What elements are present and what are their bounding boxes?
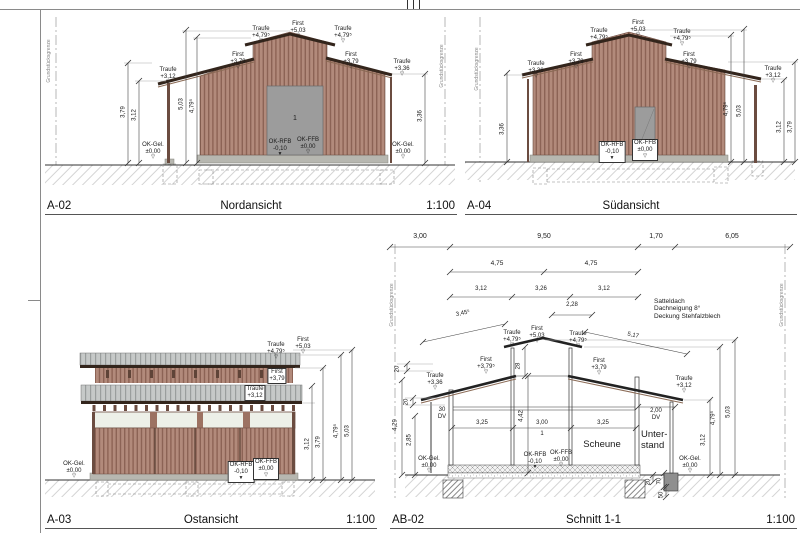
nordansicht-drawing <box>40 9 460 219</box>
suedansicht-drawing <box>460 9 800 219</box>
fold-mark-top <box>407 0 408 9</box>
drawing-title: Schnitt 1-1 <box>566 514 621 526</box>
ground-hatch <box>45 165 455 185</box>
drawing-title: Südansicht <box>603 200 660 212</box>
panel-nordansicht: GrundstücksgrenzeGrundstücksgrenzeTraufe… <box>40 9 460 219</box>
panel-schnitt: GrundstücksgrenzeGrundstücksgrenze3,009,… <box>385 230 800 533</box>
downpipe <box>430 402 432 473</box>
fold-mark-top <box>419 0 420 9</box>
drawing-id: A-04 <box>467 200 491 212</box>
panel-suedansicht: GrundstücksgrenzeTraufe +3,36▽First +3,7… <box>460 9 800 219</box>
title-block: A-03 Ostansicht 1:100 <box>45 511 377 529</box>
interior-lines <box>453 376 635 410</box>
post <box>754 85 757 163</box>
dimension-lines <box>312 350 352 480</box>
monitor-roof-band <box>80 353 300 368</box>
downpipe <box>527 79 529 162</box>
drawing-scale: 1:100 <box>346 514 375 526</box>
rafter-tails <box>88 405 296 411</box>
downpipe <box>390 77 392 163</box>
door <box>267 86 323 155</box>
roof-section <box>421 338 683 400</box>
drawing-id: AB-02 <box>392 514 424 526</box>
drawing-scale: 1:100 <box>766 514 795 526</box>
walls-posts <box>449 348 673 473</box>
title-block: A-04 Südansicht <box>465 197 797 215</box>
property-lines <box>395 244 785 498</box>
main-roof-band <box>81 385 302 404</box>
title-block: A-02 Nordansicht 1:100 <box>45 197 457 215</box>
plinth <box>197 155 388 163</box>
ground-hatch <box>45 480 375 497</box>
ground-hatch <box>465 162 795 180</box>
ostansicht-drawing <box>40 330 380 533</box>
drawing-id: A-02 <box>47 200 71 212</box>
drawing-sheet: GrundstücksgrenzeGrundstücksgrenzeTraufe… <box>0 0 800 533</box>
fold-mark-left <box>28 300 40 301</box>
drawing-scale: 1:100 <box>426 200 455 212</box>
extension-lines <box>397 340 737 405</box>
drawing-title: Nordansicht <box>220 200 281 212</box>
post <box>167 83 170 163</box>
schnitt-drawing <box>385 230 800 533</box>
title-block: AB-02 Schnitt 1-1 1:100 <box>390 511 797 529</box>
window-band <box>93 412 295 428</box>
drawing-id: A-03 <box>47 514 71 526</box>
plinth <box>530 155 728 162</box>
monitor-wall-band <box>95 368 293 383</box>
floor-slab <box>448 465 640 478</box>
panel-ostansicht: Traufe +4,79⁵▽First +5,03▽First +3,79Tra… <box>40 330 380 533</box>
fold-mark-top <box>413 0 414 9</box>
wall-face <box>533 32 725 155</box>
drawing-title: Ostansicht <box>184 514 238 526</box>
